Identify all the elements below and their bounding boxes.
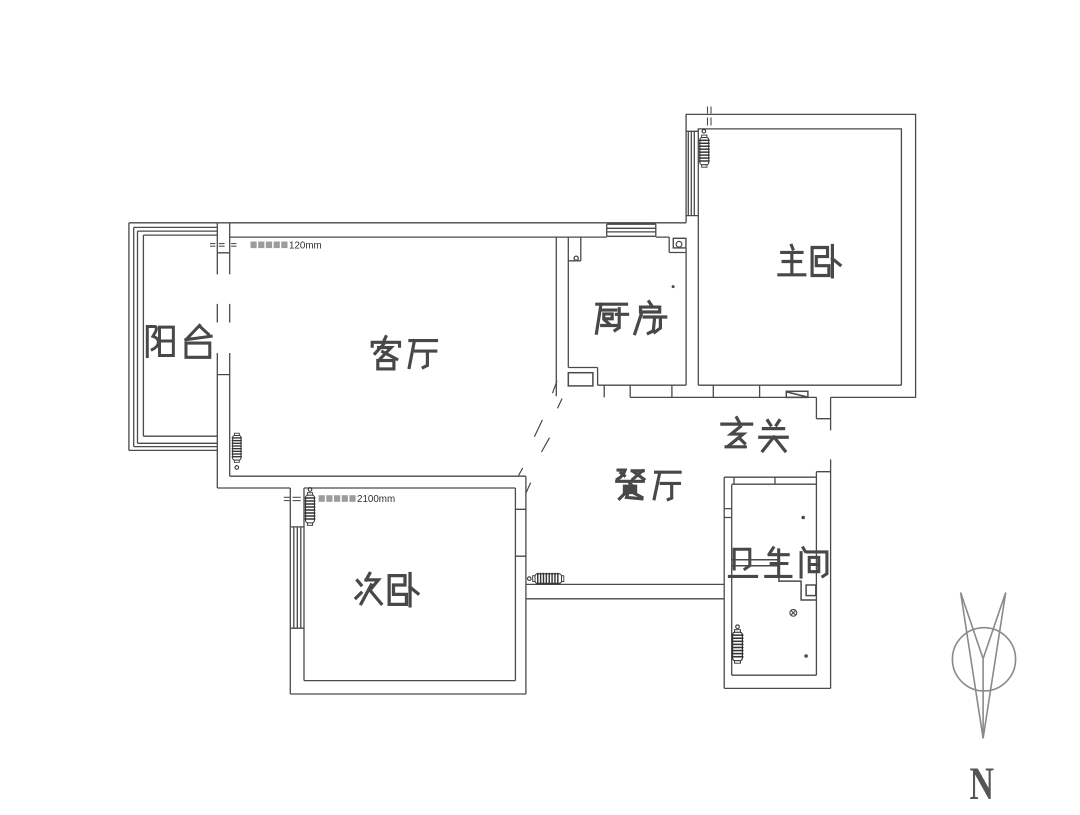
svg-text:N: N — [970, 758, 995, 810]
svg-text:2100mm: 2100mm — [357, 494, 395, 505]
svg-text:120mm: 120mm — [289, 240, 322, 251]
